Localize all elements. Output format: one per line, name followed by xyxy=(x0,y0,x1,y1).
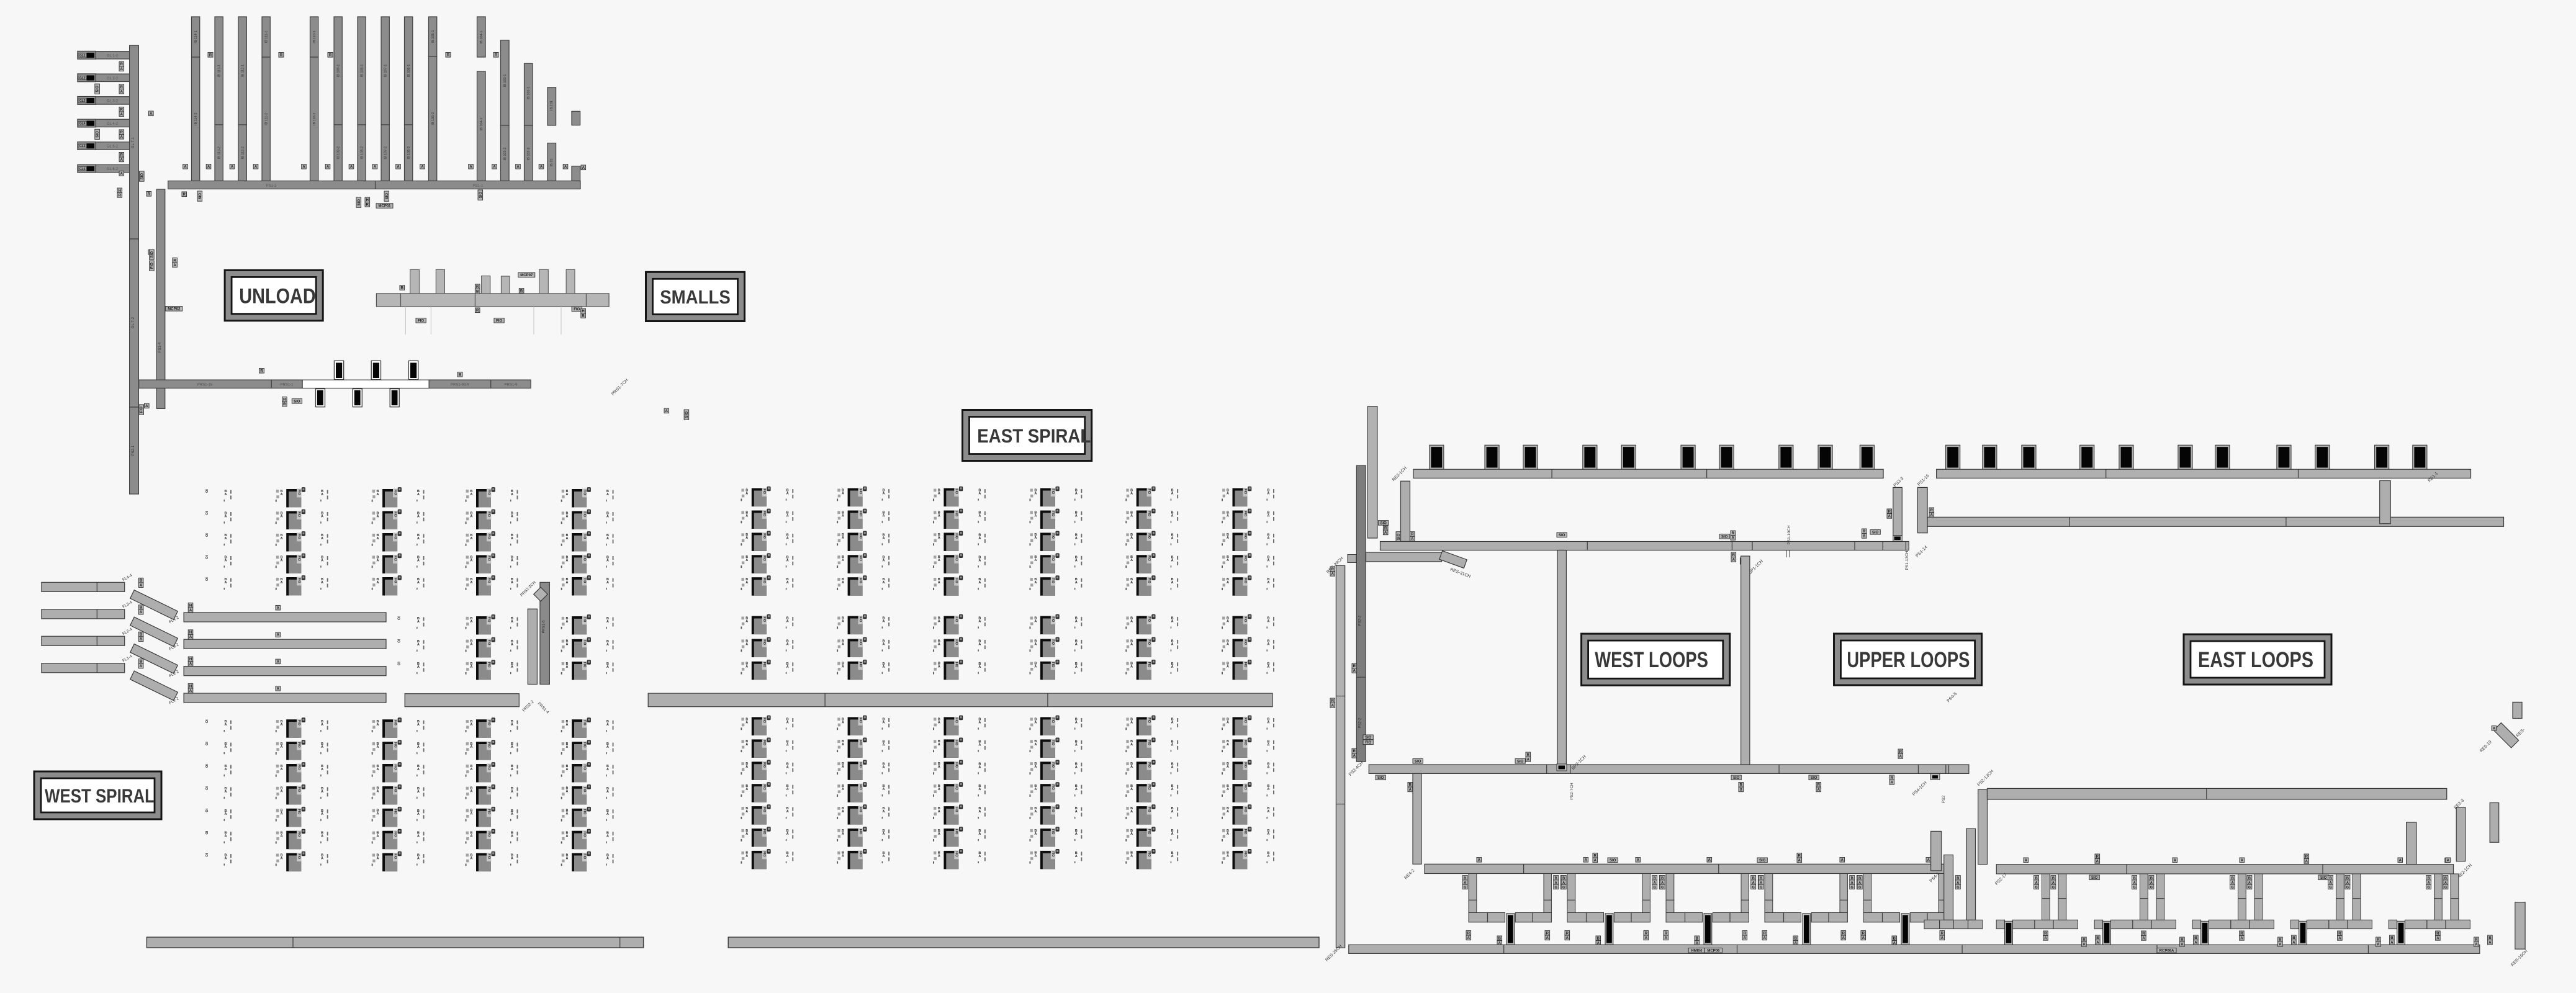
svg-text:A: A xyxy=(493,165,496,169)
svg-text:SIO: SIO xyxy=(96,86,100,92)
svg-text:A: A xyxy=(2241,859,2244,863)
svg-text:R: R xyxy=(148,192,151,196)
svg-text:SIO: SIO xyxy=(1377,776,1384,780)
svg-text:B: B xyxy=(520,290,523,294)
svg-text:A: A xyxy=(1353,670,1356,673)
svg-text:R: R xyxy=(280,53,283,57)
svg-text:A: A xyxy=(2488,941,2492,945)
svg-text:SIO: SIO xyxy=(199,193,202,200)
svg-text:IB 109-1: IB 109-1 xyxy=(337,65,341,78)
svg-text:R: R xyxy=(2377,938,2380,942)
svg-text:A: A xyxy=(2305,860,2308,864)
svg-text:R: R xyxy=(1817,783,1821,787)
svg-text:IB 107-2: IB 107-2 xyxy=(384,146,388,160)
svg-text:A: A xyxy=(1708,858,1711,862)
svg-text:B: B xyxy=(1597,937,1600,941)
svg-text:A: A xyxy=(1585,858,1588,862)
svg-text:PS2: PS2 xyxy=(1942,795,1946,803)
svg-text:RE5-19: RE5-19 xyxy=(2479,740,2493,753)
svg-text:A: A xyxy=(2096,860,2099,864)
svg-text:A: A xyxy=(277,634,280,637)
svg-text:SIO: SIO xyxy=(1872,531,1879,534)
svg-text:A: A xyxy=(1891,781,1894,785)
svg-text:PRS1-1: PRS1-1 xyxy=(280,383,294,387)
svg-text:R: R xyxy=(1527,753,1530,757)
svg-text:A: A xyxy=(150,112,153,116)
svg-text:MCP02: MCP02 xyxy=(168,307,181,311)
svg-text:GL 3-2: GL 3-2 xyxy=(107,100,119,104)
svg-text:B: B xyxy=(2292,937,2295,940)
svg-text:A: A xyxy=(2447,859,2450,863)
svg-text:R: R xyxy=(1732,532,1735,536)
svg-text:IB 104-2: IB 104-2 xyxy=(480,118,484,131)
svg-text:A: A xyxy=(374,165,377,169)
svg-text:RCP06A: RCP06A xyxy=(2159,949,2174,953)
svg-text:IB 112-2: IB 112-2 xyxy=(241,146,245,159)
svg-text:A: A xyxy=(1409,788,1412,792)
svg-text:IB 113-2: IB 113-2 xyxy=(218,146,222,159)
svg-text:H: H xyxy=(189,631,192,635)
svg-text:SIO: SIO xyxy=(2091,876,2098,880)
svg-text:PS1-2: PS1-2 xyxy=(266,184,277,188)
svg-text:A: A xyxy=(2174,859,2177,863)
svg-text:A: A xyxy=(120,158,124,162)
svg-text:GL 7-2: GL 7-2 xyxy=(132,317,135,328)
svg-text:A: A xyxy=(1478,858,1481,862)
svg-text:B: B xyxy=(401,287,404,290)
svg-text:B: B xyxy=(1795,937,1798,941)
svg-text:IB 103-2: IB 103-2 xyxy=(503,148,507,161)
svg-text:HMI04: HMI04 xyxy=(1691,949,1702,953)
svg-text:FL2-4: FL2-4 xyxy=(122,627,133,636)
svg-text:R: R xyxy=(173,259,176,263)
svg-text:A: A xyxy=(327,165,330,169)
svg-text:A: A xyxy=(140,665,143,668)
svg-text:PS1-16: PS1-16 xyxy=(1917,474,1930,487)
svg-text:IB 111-1: IB 111-1 xyxy=(265,31,269,43)
svg-text:B: B xyxy=(2488,937,2492,940)
svg-text:B: B xyxy=(140,660,143,664)
svg-text:R: R xyxy=(283,403,286,407)
svg-text:BP1-1CH: BP1-1CH xyxy=(1748,559,1764,575)
svg-text:R: R xyxy=(2142,932,2145,936)
svg-text:A: A xyxy=(2292,941,2295,945)
svg-text:H: H xyxy=(283,398,286,402)
svg-text:R: R xyxy=(2436,932,2439,936)
svg-text:A: A xyxy=(207,165,210,169)
svg-text:A: A xyxy=(120,113,124,117)
svg-text:R: R xyxy=(209,53,212,57)
svg-text:A: A xyxy=(2390,941,2394,945)
svg-text:R: R xyxy=(120,131,124,135)
svg-text:SIO: SIO xyxy=(1517,760,1524,763)
svg-text:R: R xyxy=(1862,932,1865,935)
svg-text:PS1-10CH: PS1-10CH xyxy=(1787,525,1791,544)
svg-text:IB 110-1: IB 110-1 xyxy=(313,30,317,43)
svg-text:IB 113-1: IB 113-1 xyxy=(218,65,222,77)
svg-text:A: A xyxy=(1353,755,1356,758)
svg-text:A: A xyxy=(1862,937,1865,940)
svg-text:A: A xyxy=(2240,937,2243,941)
svg-text:SIO: SIO xyxy=(294,400,300,403)
svg-text:GL 5-2: GL 5-2 xyxy=(107,145,119,149)
svg-text:RE3-1CH: RE3-1CH xyxy=(1392,466,1408,482)
svg-text:A: A xyxy=(2399,859,2402,863)
svg-text:A: A xyxy=(189,690,192,693)
svg-text:SIO: SIO xyxy=(151,251,155,258)
svg-text:R: R xyxy=(1930,509,1934,513)
svg-text:IB 114-2: IB 114-2 xyxy=(194,113,198,125)
svg-text:SIO: SIO xyxy=(1559,534,1565,537)
svg-text:A: A xyxy=(2096,941,2099,945)
svg-text:IB 111-2: IB 111-2 xyxy=(265,113,269,125)
svg-text:IB 106-1: IB 106-1 xyxy=(407,65,411,78)
svg-text:B: B xyxy=(2194,937,2197,940)
svg-text:H: H xyxy=(189,685,192,688)
svg-text:IB 102-1: IB 102-1 xyxy=(527,87,531,100)
svg-text:A: A xyxy=(1665,937,1668,940)
svg-text:A: A xyxy=(1645,937,1648,940)
svg-text:R: R xyxy=(1411,533,1414,537)
svg-text:A: A xyxy=(189,609,192,613)
svg-text:PS2-4CH: PS2-4CH xyxy=(1348,761,1364,777)
svg-text:WEST LOOPS: WEST LOOPS xyxy=(1595,648,1708,672)
svg-text:RE2-1CH: RE2-1CH xyxy=(2457,863,2473,879)
svg-text:B: B xyxy=(2096,937,2099,940)
svg-text:GL3: GL3 xyxy=(79,99,86,103)
svg-text:SIO: SIO xyxy=(358,199,361,206)
svg-text:R: R xyxy=(1899,750,1903,754)
svg-text:A: A xyxy=(2194,941,2197,945)
svg-text:R: R xyxy=(2475,938,2478,942)
svg-text:A: A xyxy=(189,636,192,639)
svg-text:R: R xyxy=(2044,932,2047,936)
svg-text:IB 108-1: IB 108-1 xyxy=(361,65,364,78)
svg-text:R: R xyxy=(1594,854,1597,858)
svg-text:MCP01: MCP01 xyxy=(378,205,391,209)
svg-text:SIO: SIO xyxy=(1759,859,1766,863)
svg-text:R: R xyxy=(1863,530,1866,534)
svg-text:R: R xyxy=(1353,665,1356,668)
svg-text:GL 6-2: GL 6-2 xyxy=(107,168,119,171)
svg-text:R: R xyxy=(495,53,498,57)
svg-text:A: A xyxy=(1863,535,1866,539)
svg-text:IB 104-1: IB 104-1 xyxy=(480,31,484,44)
svg-text:GL6: GL6 xyxy=(79,168,86,171)
svg-text:B: B xyxy=(1696,937,1699,941)
svg-text:H: H xyxy=(189,604,192,608)
svg-text:R: R xyxy=(2096,855,2099,859)
svg-text:MCP07: MCP07 xyxy=(520,274,533,277)
svg-text:R: R xyxy=(1409,783,1412,787)
svg-text:R: R xyxy=(1467,932,1470,935)
svg-text:A: A xyxy=(1566,937,1569,940)
svg-text:H: H xyxy=(189,658,192,662)
svg-text:A: A xyxy=(1930,514,1934,518)
svg-text:UNLOAD: UNLOAD xyxy=(239,284,315,308)
svg-text:B: B xyxy=(1893,937,1896,941)
svg-text:GL1: GL1 xyxy=(79,54,86,58)
svg-text:R: R xyxy=(260,369,263,373)
svg-text:SIO: SIO xyxy=(1610,859,1616,863)
svg-text:A: A xyxy=(277,606,280,610)
svg-text:PS1-1: PS1-1 xyxy=(473,184,484,188)
svg-text:A: A xyxy=(277,687,280,691)
svg-text:SIO: SIO xyxy=(1365,736,1372,740)
svg-text:R: R xyxy=(2181,938,2184,942)
svg-text:R: R xyxy=(1546,932,1549,935)
svg-text:WEST SPIRAL: WEST SPIRAL xyxy=(45,784,155,807)
svg-text:A: A xyxy=(189,663,192,667)
svg-text:A: A xyxy=(1467,937,1470,940)
svg-text:PS1-13CH: PS1-13CH xyxy=(1905,550,1909,570)
svg-text:A: A xyxy=(540,165,543,169)
svg-text:PS1-4: PS1-4 xyxy=(158,342,162,353)
svg-text:A: A xyxy=(1817,788,1821,792)
svg-text:A: A xyxy=(1899,755,1903,759)
svg-text:A: A xyxy=(1637,858,1640,862)
svg-text:PS1-14: PS1-14 xyxy=(1915,545,1929,559)
svg-text:R: R xyxy=(2083,938,2086,942)
svg-text:H: H xyxy=(366,199,369,202)
svg-text:PRS1-5: PRS1-5 xyxy=(543,620,546,634)
svg-text:A: A xyxy=(2181,943,2184,947)
svg-text:B: B xyxy=(2390,937,2394,940)
svg-text:A: A xyxy=(2377,943,2380,947)
svg-text:A: A xyxy=(1411,537,1414,541)
svg-text:FIO: FIO xyxy=(151,263,155,269)
svg-text:PS4-5: PS4-5 xyxy=(1947,692,1958,704)
svg-text:R: R xyxy=(1744,932,1747,935)
svg-text:R: R xyxy=(1566,932,1569,935)
svg-text:R: R xyxy=(2305,855,2308,859)
svg-text:FIO: FIO xyxy=(496,319,502,323)
svg-text:SIO: SIO xyxy=(479,192,483,199)
svg-text:R: R xyxy=(2279,938,2282,942)
svg-text:A: A xyxy=(120,173,124,176)
svg-text:A: A xyxy=(140,611,143,614)
svg-text:GL4: GL4 xyxy=(79,122,86,126)
svg-text:A: A xyxy=(120,90,124,94)
svg-text:SIO: SIO xyxy=(1733,776,1740,780)
svg-text:SIO: SIO xyxy=(685,411,689,418)
svg-text:PRS1-4: PRS1-4 xyxy=(537,701,550,714)
svg-text:SIO: SIO xyxy=(2320,876,2327,880)
svg-text:A: A xyxy=(1941,937,1944,940)
svg-text:A: A xyxy=(1732,537,1735,541)
svg-text:RES-31CH: RES-31CH xyxy=(1449,567,1471,578)
svg-text:B: B xyxy=(140,579,143,583)
svg-text:R: R xyxy=(1732,554,1736,557)
svg-text:A: A xyxy=(277,660,280,664)
svg-text:FIO: FIO xyxy=(140,407,144,413)
svg-text:IB 108-2: IB 108-2 xyxy=(361,146,364,160)
svg-text:A: A xyxy=(1798,859,1801,863)
svg-text:R: R xyxy=(1740,783,1743,787)
svg-text:A: A xyxy=(1888,515,1891,519)
svg-text:R: R xyxy=(476,309,479,313)
svg-text:A: A xyxy=(1732,559,1736,562)
svg-text:A: A xyxy=(421,165,424,169)
svg-text:R: R xyxy=(1331,568,1335,572)
svg-text:R: R xyxy=(2338,932,2341,936)
svg-text:RE4-2: RE4-2 xyxy=(1403,868,1415,880)
svg-text:GL 7-1: GL 7-1 xyxy=(132,137,135,148)
svg-text:SIO: SIO xyxy=(140,173,144,180)
svg-text:A: A xyxy=(2025,859,2028,863)
svg-text:RES-16CH: RES-16CH xyxy=(2510,949,2528,967)
svg-text:R: R xyxy=(1888,510,1891,514)
svg-text:PRS1-7CH: PRS1-7CH xyxy=(611,378,629,396)
svg-text:PRS2-2: PRS2-2 xyxy=(521,699,534,712)
svg-text:FL3-4: FL3-4 xyxy=(122,600,133,609)
svg-text:GL5: GL5 xyxy=(79,145,86,148)
svg-text:R: R xyxy=(183,193,186,197)
svg-text:FL4-4: FL4-4 xyxy=(122,573,133,583)
svg-text:A: A xyxy=(1384,531,1387,535)
svg-text:A: A xyxy=(1744,937,1747,940)
svg-text:R: R xyxy=(1891,776,1894,780)
svg-text:A: A xyxy=(1331,704,1335,708)
svg-text:IB 10: IB 10 xyxy=(550,159,554,167)
svg-text:A: A xyxy=(254,165,258,169)
svg-text:A: A xyxy=(350,165,353,169)
svg-text:R: R xyxy=(1645,932,1648,935)
svg-text:A: A xyxy=(2083,943,2086,947)
svg-text:B: B xyxy=(459,373,462,377)
svg-text:R: R xyxy=(1941,932,1944,935)
svg-text:B: B xyxy=(582,315,585,318)
svg-text:B: B xyxy=(140,633,143,637)
svg-text:SIO: SIO xyxy=(1721,535,1728,539)
svg-text:GL 1-2: GL 1-2 xyxy=(107,54,119,58)
svg-text:IB 103-1: IB 103-1 xyxy=(503,74,507,88)
svg-text:A: A xyxy=(469,165,472,169)
svg-text:A: A xyxy=(1546,937,1549,940)
svg-text:PS2-2: PS2-2 xyxy=(1359,717,1362,728)
svg-text:R: R xyxy=(120,63,124,66)
svg-text:SMALLS: SMALLS xyxy=(660,286,731,308)
svg-text:A: A xyxy=(1842,937,1845,940)
svg-text:A: A xyxy=(302,165,305,169)
svg-text:R: R xyxy=(2240,932,2243,936)
svg-text:IB 114-1: IB 114-1 xyxy=(194,30,198,43)
svg-text:IB 107-1: IB 107-1 xyxy=(384,65,388,78)
svg-text:IB 106-2: IB 106-2 xyxy=(407,146,411,160)
svg-text:R: R xyxy=(120,86,124,89)
svg-text:B: B xyxy=(1498,937,1502,941)
svg-text:R: R xyxy=(1842,932,1845,935)
svg-text:A: A xyxy=(173,264,176,267)
svg-text:H: H xyxy=(582,310,584,313)
svg-text:IB 105-2: IB 105-2 xyxy=(431,112,435,125)
svg-text:B: B xyxy=(476,290,479,294)
svg-text:A: A xyxy=(1841,858,1844,862)
svg-text:A: A xyxy=(665,410,669,413)
svg-text:PRS1-9: PRS1-9 xyxy=(504,383,518,387)
svg-text:A: A xyxy=(231,165,234,169)
svg-text:PS2-17: PS2-17 xyxy=(1994,873,2008,886)
svg-text:R: R xyxy=(120,153,124,157)
svg-text:IB 102-2: IB 102-2 xyxy=(527,148,531,161)
svg-text:FIO: FIO xyxy=(574,308,580,312)
svg-text:R: R xyxy=(1763,932,1767,935)
svg-text:PS2-1: PS2-1 xyxy=(132,445,135,456)
svg-text:PS3-3: PS3-3 xyxy=(1893,477,1905,488)
svg-text:SIO: SIO xyxy=(1380,522,1387,526)
svg-text:A: A xyxy=(564,165,567,169)
svg-text:IB 112-1: IB 112-1 xyxy=(241,65,245,77)
svg-text:A: A xyxy=(2044,937,2047,941)
svg-text:A: A xyxy=(1331,573,1335,577)
svg-text:A: A xyxy=(120,135,124,139)
svg-text:A: A xyxy=(2142,937,2145,941)
svg-text:A: A xyxy=(1763,937,1767,940)
svg-text:SIO: SIO xyxy=(1415,760,1421,763)
svg-text:FL1-4: FL1-4 xyxy=(122,654,133,663)
svg-text:A: A xyxy=(397,165,400,169)
svg-text:R: R xyxy=(447,53,450,57)
svg-text:RES-25CH: RES-25CH xyxy=(1325,944,1343,962)
svg-text:SIO: SIO xyxy=(1811,776,1817,780)
svg-text:A: A xyxy=(2436,937,2439,941)
svg-text:R: R xyxy=(329,53,332,57)
svg-text:EAST LOOPS: EAST LOOPS xyxy=(2198,648,2313,672)
svg-text:PS2-7CH: PS2-7CH xyxy=(1570,783,1574,800)
svg-text:A: A xyxy=(184,165,187,169)
svg-text:A: A xyxy=(516,165,520,169)
svg-text:IB 110-2: IB 110-2 xyxy=(313,113,317,125)
svg-text:RES-: RES- xyxy=(2516,727,2526,738)
svg-text:A: A xyxy=(140,638,143,642)
svg-text:A: A xyxy=(140,584,143,588)
svg-text:IB 109-2: IB 109-2 xyxy=(337,146,341,160)
svg-text:A: A xyxy=(2338,937,2341,941)
svg-text:PS2-13CH: PS2-13CH xyxy=(1977,770,1995,788)
svg-text:SIO: SIO xyxy=(1397,533,1401,540)
svg-text:R: R xyxy=(1384,526,1387,530)
svg-text:R: R xyxy=(476,285,479,289)
svg-text:PRS1-18: PRS1-18 xyxy=(197,383,213,387)
svg-text:R: R xyxy=(119,194,122,198)
svg-text:PRS1-9GR: PRS1-9GR xyxy=(451,383,470,387)
svg-text:EAST SPIRAL: EAST SPIRAL xyxy=(977,425,1091,447)
svg-text:IB 105-1: IB 105-1 xyxy=(431,30,435,43)
svg-text:UPPER LOOPS: UPPER LOOPS xyxy=(1847,648,1970,672)
svg-text:R: R xyxy=(1331,699,1335,703)
svg-text:FIO: FIO xyxy=(1365,741,1371,745)
svg-text:PS2-2: PS2-2 xyxy=(1359,615,1362,626)
svg-text:PS4-1CH: PS4-1CH xyxy=(1912,781,1928,797)
svg-text:R: R xyxy=(366,204,369,207)
svg-text:A: A xyxy=(2493,727,2496,730)
svg-text:SIO: SIO xyxy=(385,193,389,200)
svg-text:IB 101: IB 101 xyxy=(550,101,554,110)
svg-text:A: A xyxy=(120,68,124,71)
svg-text:R: R xyxy=(1798,854,1801,858)
svg-text:R: R xyxy=(1353,750,1356,753)
svg-text:A: A xyxy=(1927,858,1930,862)
svg-text:MCP06: MCP06 xyxy=(1707,949,1720,953)
svg-text:R: R xyxy=(1665,932,1668,935)
svg-text:A: A xyxy=(145,405,148,408)
svg-text:SIO: SIO xyxy=(96,131,100,138)
svg-text:A: A xyxy=(1527,758,1530,762)
svg-text:R: R xyxy=(120,108,124,112)
svg-text:H: H xyxy=(119,189,121,193)
svg-text:A: A xyxy=(2475,943,2478,947)
svg-text:B: B xyxy=(140,606,143,610)
